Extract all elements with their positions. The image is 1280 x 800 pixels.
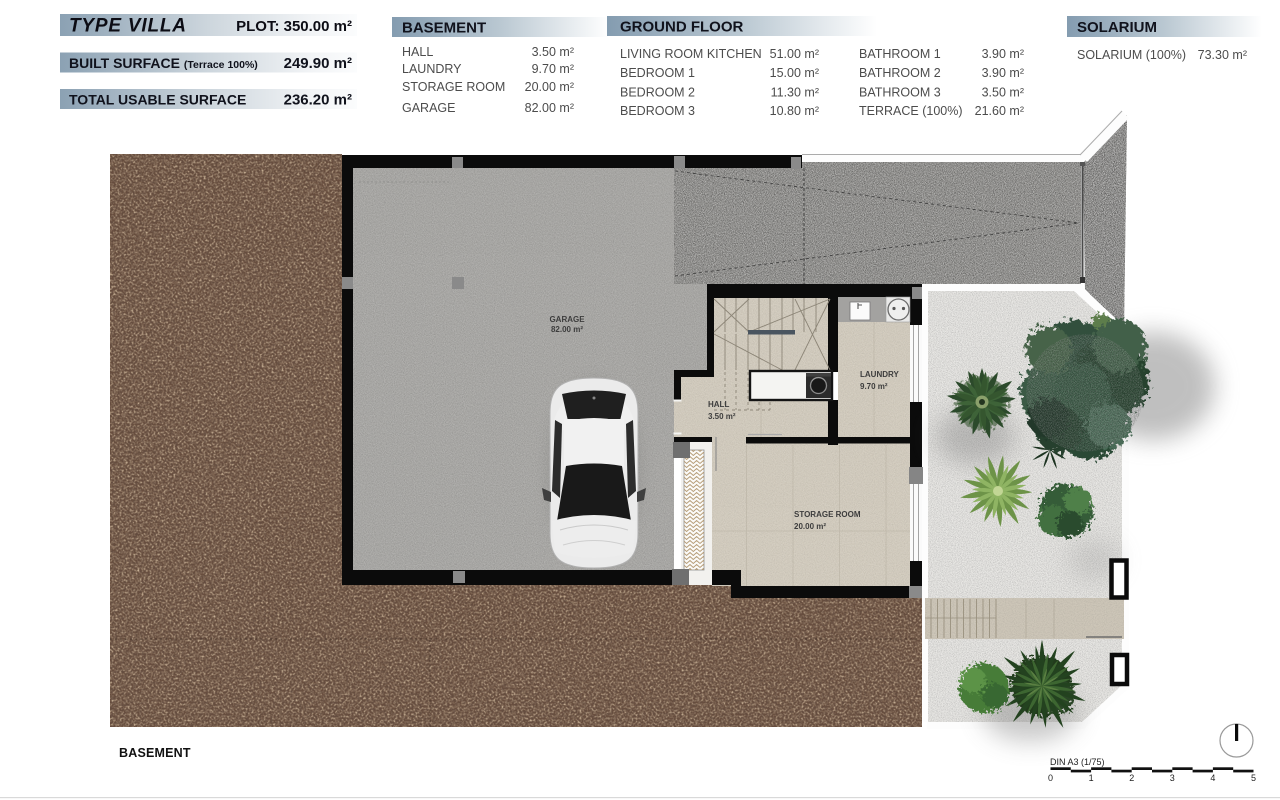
svg-text:HALL: HALL — [708, 400, 729, 409]
svg-text:BASEMENT: BASEMENT — [119, 746, 191, 760]
svg-text:3.90 m²: 3.90 m² — [982, 66, 1024, 80]
svg-text:2: 2 — [1129, 773, 1134, 783]
svg-text:GARAGE: GARAGE — [549, 315, 585, 324]
svg-text:20.00 m²: 20.00 m² — [794, 522, 826, 531]
svg-text:9.70 m²: 9.70 m² — [860, 382, 888, 391]
svg-text:10.80 m²: 10.80 m² — [770, 104, 819, 118]
svg-text:BEDROOM 1: BEDROOM 1 — [620, 66, 695, 80]
svg-text:GROUND FLOOR: GROUND FLOOR — [620, 19, 743, 36]
svg-text:73.30 m²: 73.30 m² — [1198, 48, 1247, 62]
svg-text:TYPE VILLA: TYPE VILLA — [69, 16, 187, 37]
svg-text:3.50 m²: 3.50 m² — [532, 45, 574, 59]
svg-text:0: 0 — [1048, 773, 1053, 783]
svg-text:249.90 m²: 249.90 m² — [284, 55, 352, 72]
svg-text:3.50 m²: 3.50 m² — [708, 412, 736, 421]
svg-text:PLOT: 350.00 m²: PLOT: 350.00 m² — [236, 18, 352, 35]
svg-text:11.30 m²: 11.30 m² — [771, 86, 819, 100]
svg-text:BEDROOM 2: BEDROOM 2 — [620, 86, 695, 100]
svg-text:BATHROOM 3: BATHROOM 3 — [859, 86, 941, 100]
svg-text:SOLARIUM: SOLARIUM — [1077, 19, 1157, 36]
svg-text:82.00 m²: 82.00 m² — [525, 101, 574, 115]
svg-text:BATHROOM 1: BATHROOM 1 — [859, 47, 941, 61]
svg-text:LIVING ROOM KITCHEN: LIVING ROOM KITCHEN — [620, 47, 762, 61]
svg-text:GARAGE: GARAGE — [402, 101, 456, 115]
svg-text:HALL: HALL — [402, 45, 433, 59]
svg-text:5: 5 — [1251, 773, 1256, 783]
svg-text:TERRACE (100%): TERRACE (100%) — [859, 104, 963, 118]
svg-text:BEDROOM 3: BEDROOM 3 — [620, 104, 695, 118]
svg-text:1: 1 — [1089, 773, 1094, 783]
svg-text:21.60 m²: 21.60 m² — [975, 104, 1024, 118]
svg-text:STORAGE ROOM: STORAGE ROOM — [402, 80, 505, 94]
svg-text:BATHROOM 2: BATHROOM 2 — [859, 66, 941, 80]
svg-text:4: 4 — [1210, 773, 1215, 783]
svg-text:82.00 m²: 82.00 m² — [551, 325, 583, 334]
svg-text:20.00 m²: 20.00 m² — [525, 80, 574, 94]
svg-text:STORAGE ROOM: STORAGE ROOM — [794, 510, 861, 519]
svg-text:BASEMENT: BASEMENT — [402, 20, 486, 37]
svg-text:9.70 m²: 9.70 m² — [532, 62, 574, 76]
svg-text:TOTAL USABLE SURFACE: TOTAL USABLE SURFACE — [69, 92, 246, 108]
svg-text:SOLARIUM (100%): SOLARIUM (100%) — [1077, 48, 1186, 62]
svg-text:DIN A3 (1/75): DIN A3 (1/75) — [1050, 757, 1105, 767]
svg-text:3.90 m²: 3.90 m² — [982, 47, 1024, 61]
svg-text:3.50 m²: 3.50 m² — [982, 86, 1024, 100]
svg-text:236.20 m²: 236.20 m² — [284, 92, 352, 109]
svg-text:LAUNDRY: LAUNDRY — [860, 370, 899, 379]
svg-text:3: 3 — [1170, 773, 1175, 783]
svg-text:15.00 m²: 15.00 m² — [770, 66, 819, 80]
svg-text:LAUNDRY: LAUNDRY — [402, 62, 462, 76]
svg-text:51.00 m²: 51.00 m² — [770, 47, 819, 61]
